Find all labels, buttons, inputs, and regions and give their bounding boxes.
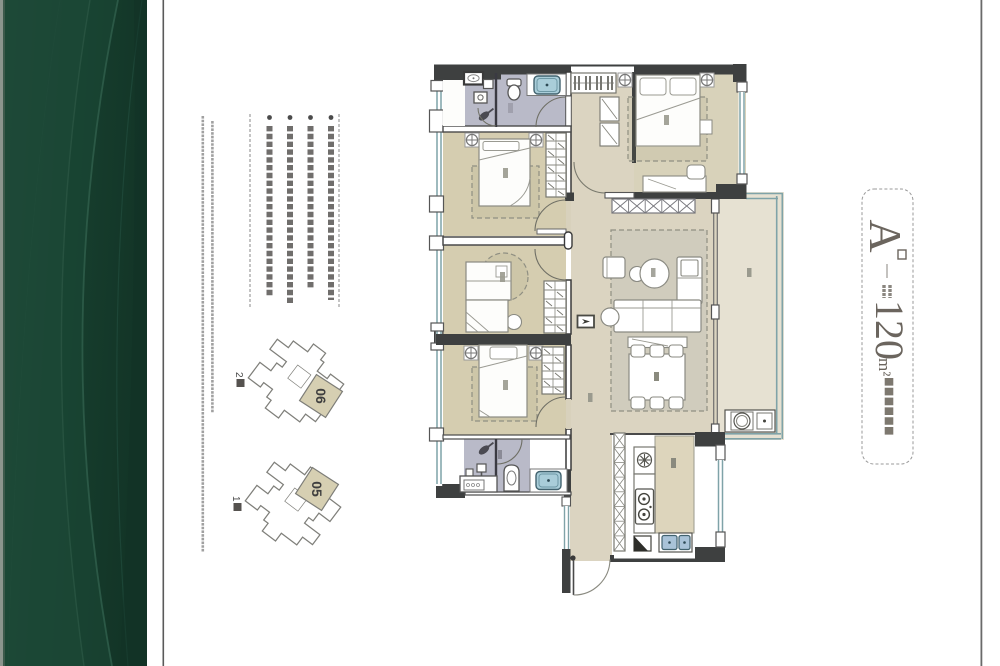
svg-text:m²: m² xyxy=(875,358,894,376)
svg-text:2: 2 xyxy=(233,372,244,378)
svg-text:1: 1 xyxy=(230,496,241,502)
svg-text:05: 05 xyxy=(309,481,325,497)
svg-text:A: A xyxy=(860,219,911,252)
svg-text:06: 06 xyxy=(313,388,329,404)
svg-text:120: 120 xyxy=(867,300,912,360)
